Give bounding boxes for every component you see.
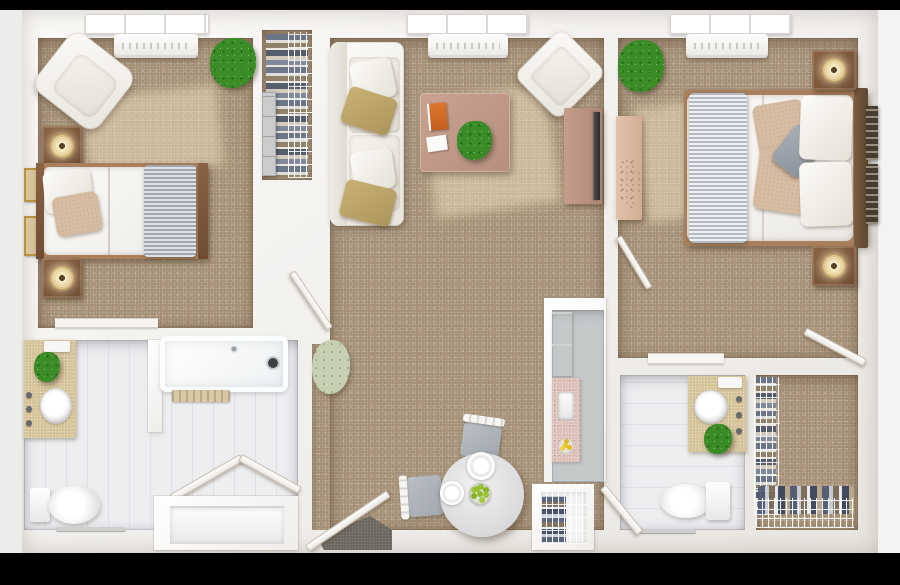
linen-shelf [170,506,284,544]
green-apples [477,491,483,497]
notepad [426,135,448,153]
potted-plant [457,121,492,160]
potted-plant [704,424,732,454]
top-letterbox [0,0,900,10]
wire-shelf-rail [756,498,854,528]
bottom-letterbox [0,553,900,585]
linen-cabinet [154,496,298,550]
faucet-handle [736,428,742,434]
kitchen-block [544,298,606,482]
book [427,102,448,131]
window-bedroom-1 [85,14,209,34]
pillow [51,190,103,237]
towel-bar [56,527,126,531]
wire-shelving [288,32,312,178]
lemons [563,443,568,448]
right-margin [878,10,900,553]
wire-shelving [540,492,586,544]
potted-plant [34,352,60,382]
bathtub-shower [160,336,288,392]
faucet-handle [736,412,742,418]
toilet-bowl [660,484,712,518]
sheet-fold-line [108,167,110,255]
table-lamp [49,265,75,291]
dining-chair [407,475,444,517]
potted-plant [618,40,664,92]
ptac-unit-bedroom-1 [114,34,198,58]
window-living [407,14,529,34]
toilet-bowl [48,486,100,524]
floor-plan-stage [0,0,900,585]
ptac-unit-living [428,34,508,58]
doorway-threshold [648,353,724,364]
storage-tower [262,92,276,176]
faucet-handle [26,420,32,426]
towel-bar [640,529,696,533]
table-lamp [49,133,75,159]
closet-track [55,318,158,328]
bed-twin [36,163,208,259]
granite-countertop [552,378,580,462]
table-lamp [821,253,847,279]
striped-throw-blanket [689,93,747,243]
pillow [799,161,853,227]
vanity-round-sink [694,390,728,424]
fruit-bowl [469,483,491,505]
faucet-handle [26,406,32,412]
tub-drain [230,345,238,353]
television [594,112,600,200]
gray-throw-blanket [144,165,196,257]
chair-cushion [50,51,121,121]
ptac-unit-bedroom-2 [686,34,768,58]
vanity-towels [718,377,742,388]
table-lamp [821,57,847,83]
pillow [799,95,853,161]
framed-wall-art [866,106,878,160]
shower-head [268,358,278,368]
faucet-handle [26,392,32,398]
footboard [198,163,208,259]
toilet-tank [30,488,50,522]
faucet-handle [736,396,742,402]
lemon-bowl [558,438,574,454]
left-margin [0,10,22,553]
vanity-sink [40,388,72,424]
entry-closet [532,484,594,550]
bed-queen [684,90,868,246]
coffee-table [420,93,510,172]
dinner-plate [440,481,464,505]
kitchen-sink [558,392,574,420]
upper-cabinets [552,312,572,376]
potted-plant [210,38,256,88]
toilet-tank [706,482,730,520]
desk-decor-twigs [618,158,640,208]
bath-mat [172,390,230,402]
dinner-plate [467,452,495,480]
chair-back-rail [399,475,410,519]
window-bedroom-2 [670,14,792,34]
vanity-towels [44,341,70,352]
framed-wall-art [866,164,878,224]
